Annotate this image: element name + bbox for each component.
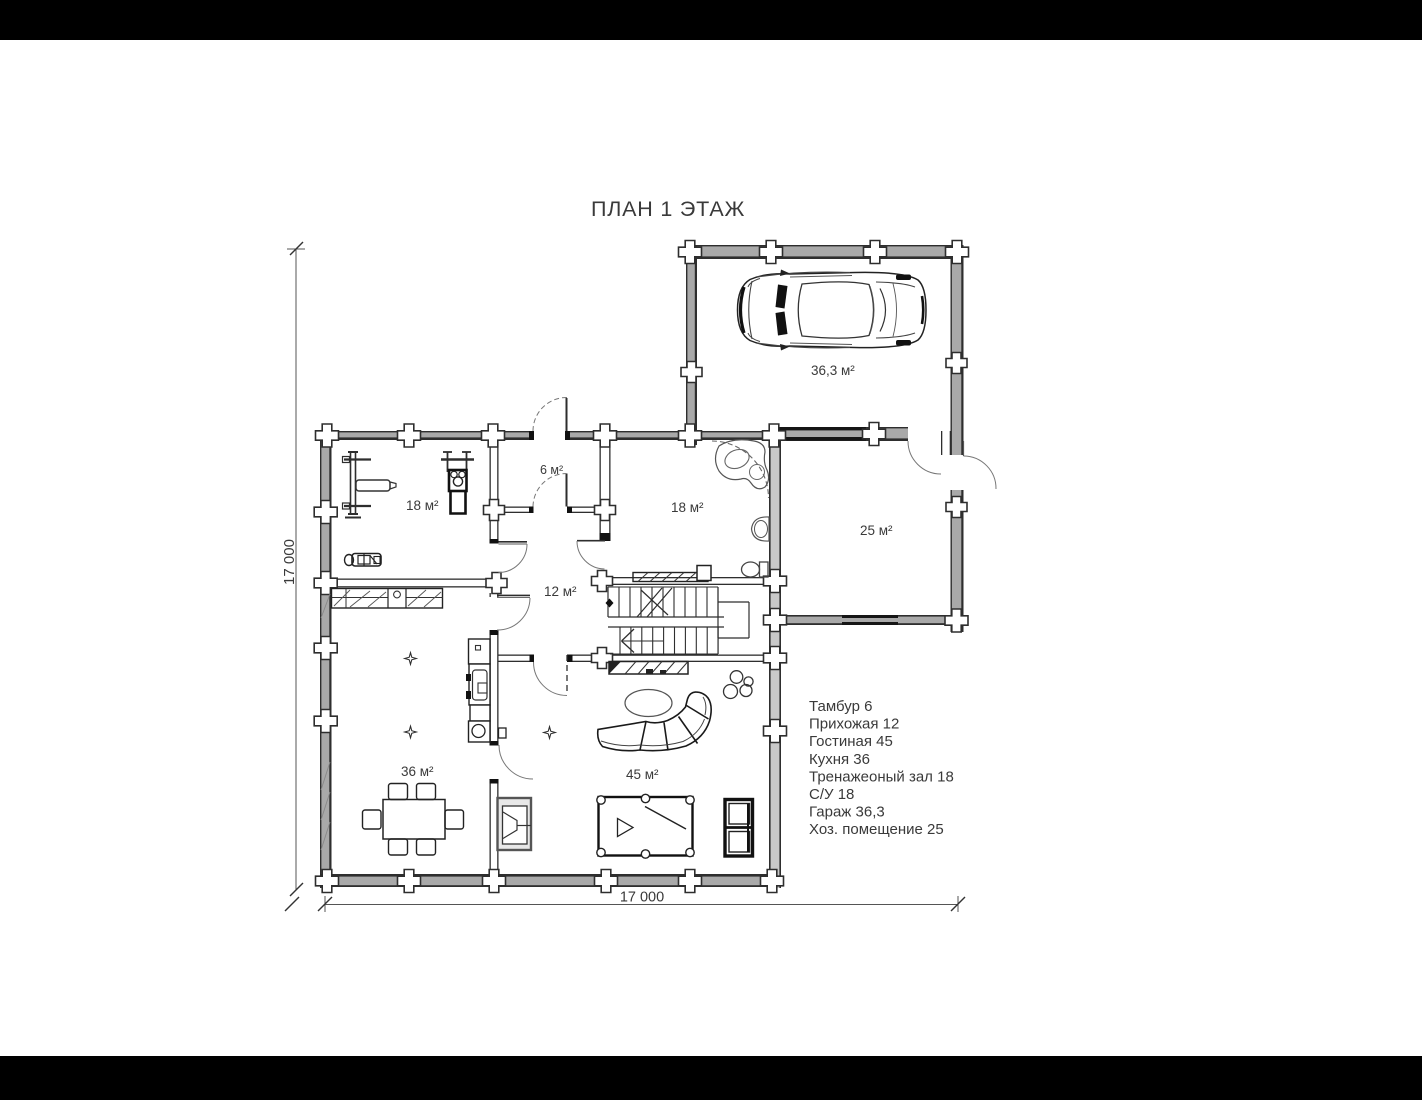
svg-text:12 м²: 12 м² [544, 584, 577, 599]
svg-text:ПЛАН 1 ЭТАЖ: ПЛАН 1 ЭТАЖ [591, 197, 745, 221]
svg-text:Тренажеоный зал 18: Тренажеоный зал 18 [809, 768, 954, 785]
svg-text:17 000: 17 000 [281, 539, 298, 585]
svg-text:Тамбур 6: Тамбур 6 [809, 698, 872, 715]
svg-text:Гостиная 45: Гостиная 45 [809, 733, 893, 750]
svg-text:Прихожая 12: Прихожая 12 [809, 716, 899, 733]
svg-text:36,3 м²: 36,3 м² [811, 363, 855, 378]
svg-text:Хоз. помещение 25: Хоз. помещение 25 [809, 821, 944, 838]
svg-text:С/У 18: С/У 18 [809, 786, 854, 803]
svg-text:Гараж 36,3: Гараж 36,3 [809, 804, 885, 821]
svg-text:17 000: 17 000 [620, 890, 664, 906]
svg-text:6 м²: 6 м² [540, 463, 563, 477]
svg-text:18 м²: 18 м² [671, 500, 704, 515]
svg-text:Кухня 36: Кухня 36 [809, 751, 870, 768]
svg-text:45 м²: 45 м² [626, 767, 659, 782]
svg-text:18 м²: 18 м² [406, 498, 439, 513]
svg-text:25 м²: 25 м² [860, 523, 893, 538]
svg-text:36 м²: 36 м² [401, 764, 434, 779]
